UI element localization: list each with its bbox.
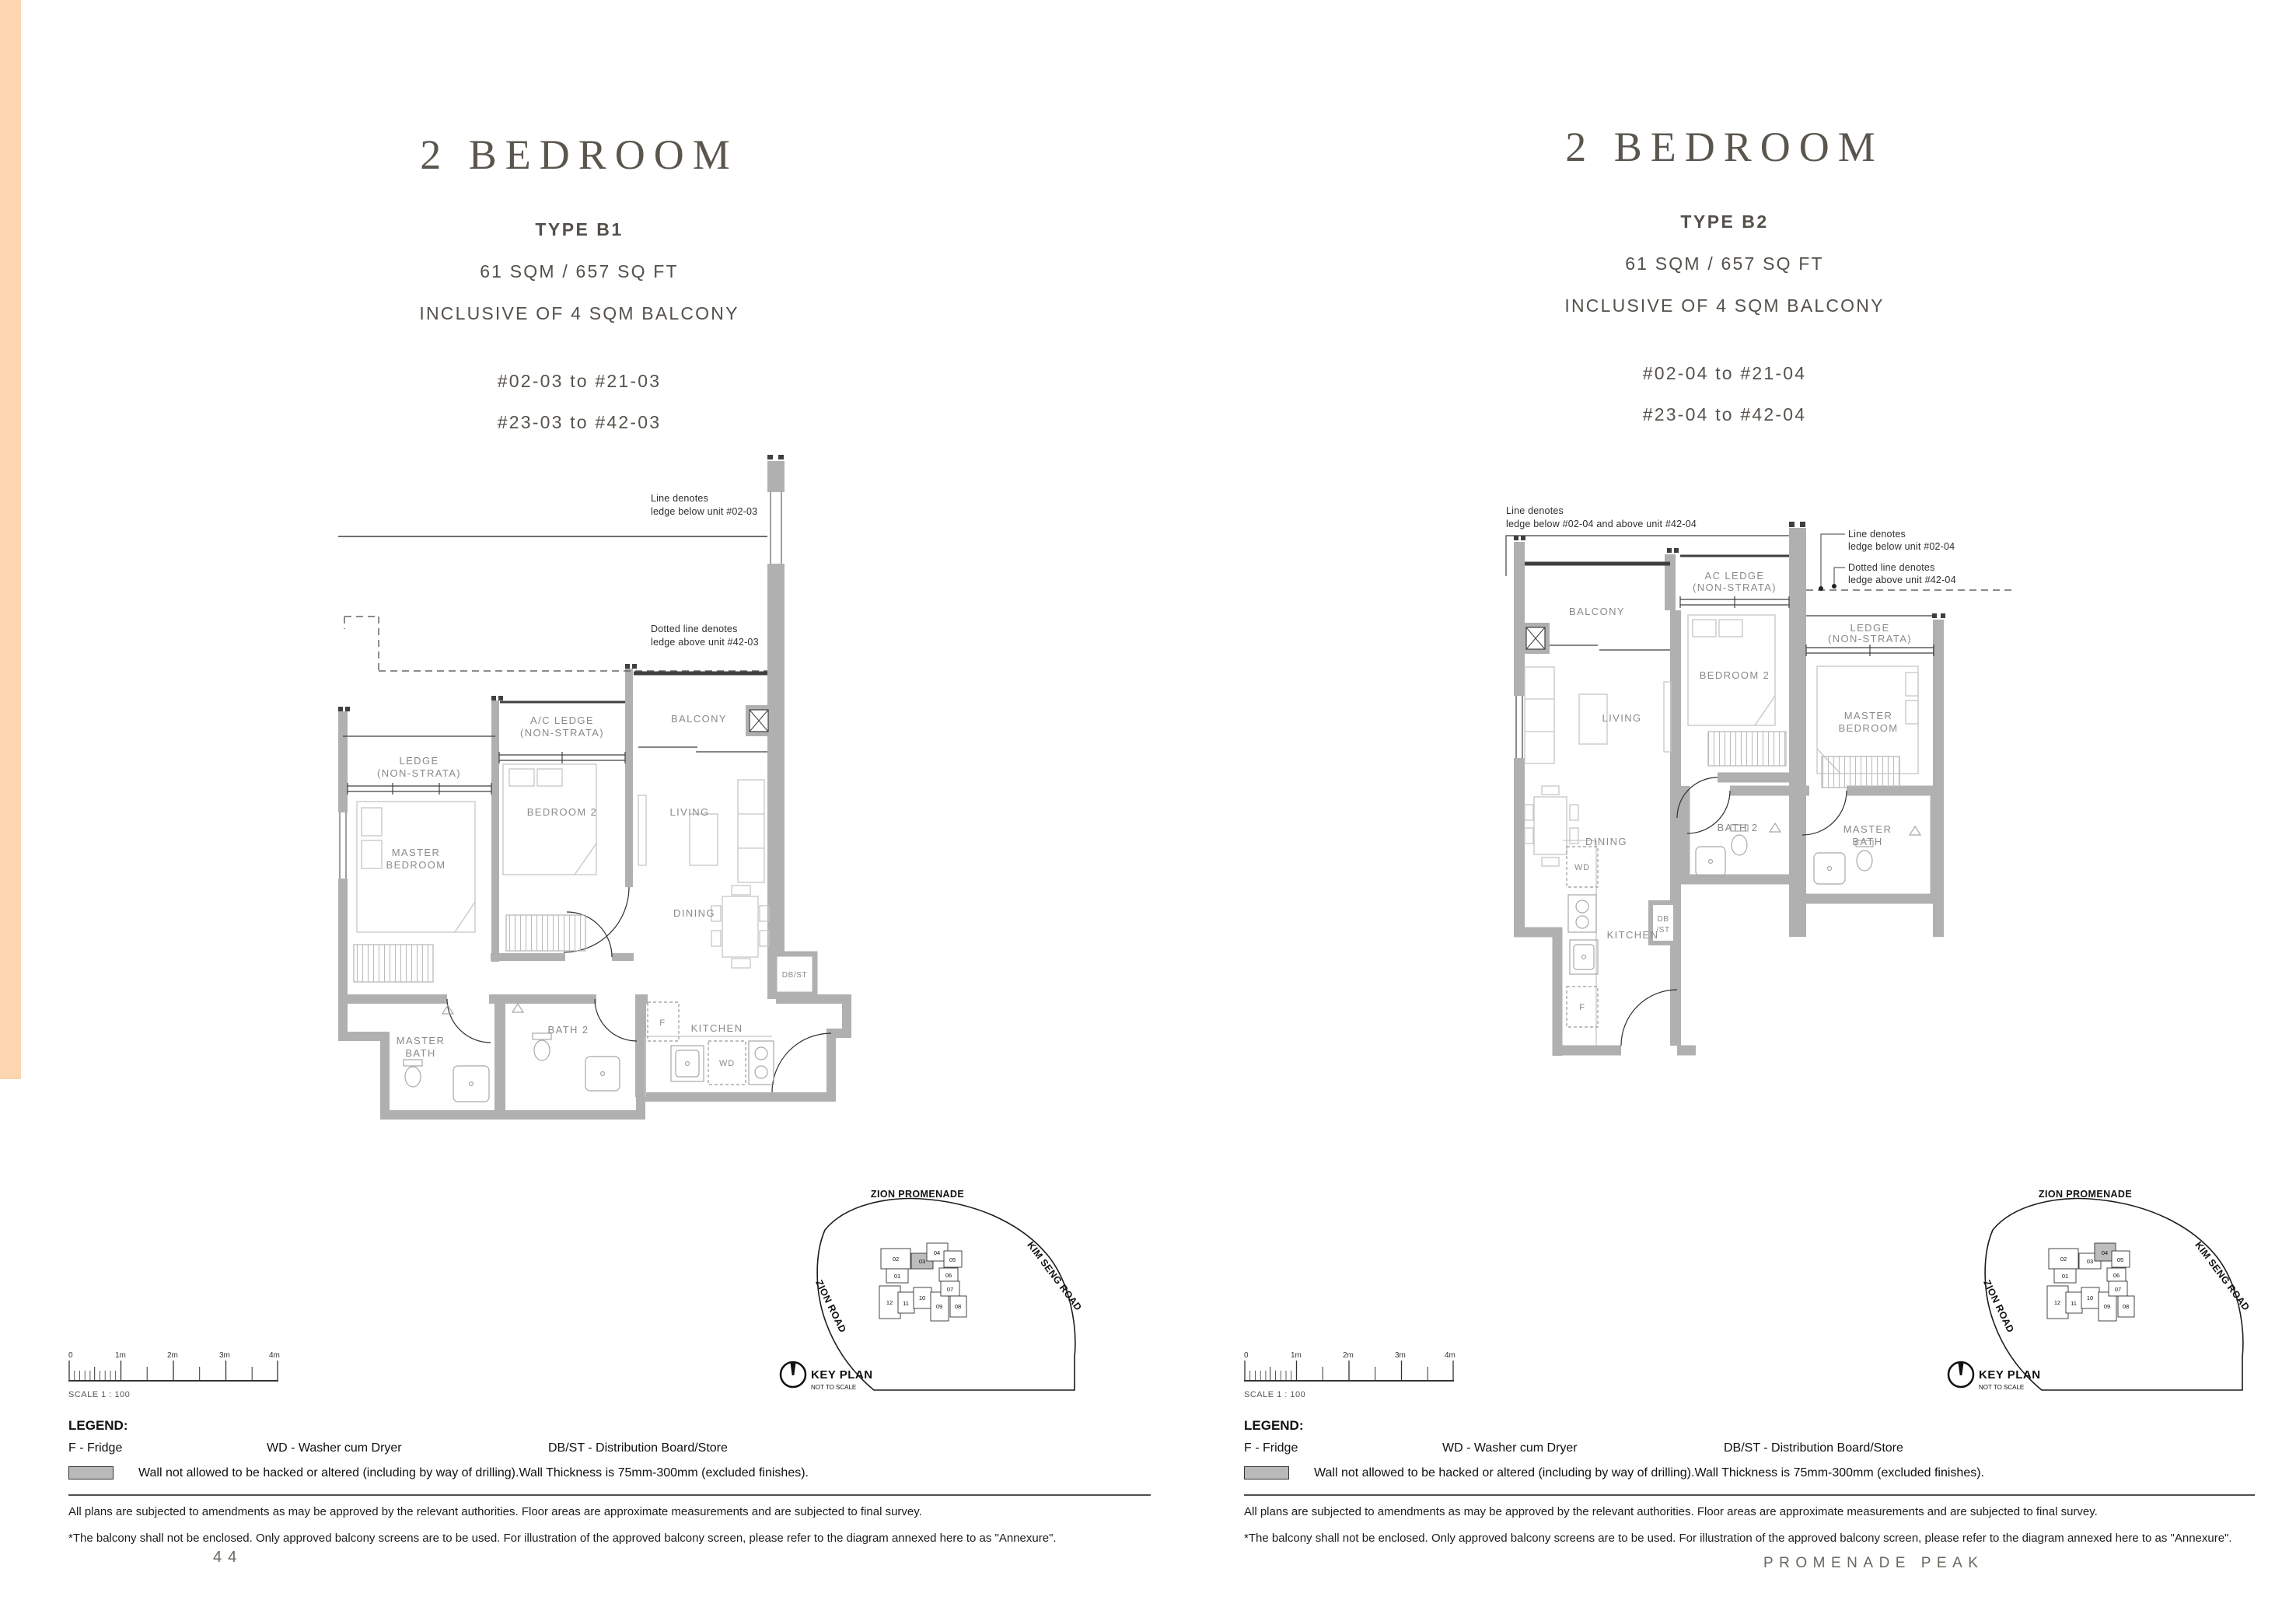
disclaimer-line2: *The balcony shall not be enclosed. Only… — [68, 1532, 1057, 1545]
block-02: 02 — [893, 1256, 899, 1263]
block-03: 03 — [2087, 1258, 2093, 1265]
legend-title: LEGEND: — [68, 1418, 128, 1434]
divider — [68, 1494, 1151, 1496]
b2-ann-solid-line1: Line denotes — [1848, 529, 1906, 540]
legend-item-wd: WD - Washer cum Dryer — [267, 1441, 402, 1455]
unit-range-2-b1: #23-03 to #42-03 — [327, 412, 832, 433]
legend-block-b1: 0 1m 2m 3m 4m SCALE 1 : 100 LEGEND: F - … — [68, 1350, 1151, 1575]
b1-label-master2: BEDROOM — [386, 859, 446, 871]
balcony-note-b2: INCLUSIVE OF 4 SQM BALCONY — [1472, 295, 1977, 316]
b1-label-living: LIVING — [669, 806, 709, 818]
legend-block-b2: 0 1m 2m 3m 4m SCALE 1 : 100 LEGEND: F - … — [1244, 1350, 2255, 1575]
road-zion-promenade: ZION PROMENADE — [871, 1189, 964, 1200]
legend-item-dbst: DB/ST - Distribution Board/Store — [548, 1441, 728, 1455]
b2-label-ledge2: (NON-STRATA) — [1828, 633, 1912, 645]
unit-range-2-b2: #23-04 to #42-04 — [1472, 404, 1977, 425]
scale-tick-1m: 1m — [1291, 1351, 1302, 1360]
b1-label-dbst: DB/ST — [782, 971, 807, 980]
block-11: 11 — [903, 1300, 909, 1307]
block-08: 08 — [955, 1303, 961, 1310]
b1-label-bath2: BATH 2 — [548, 1024, 589, 1036]
b1-label-mbath2: BATH — [405, 1047, 435, 1059]
b1-ann-dash-line1: Dotted line denotes — [651, 624, 738, 634]
area-label-b2: 61 SQM / 657 SQ FT — [1472, 253, 1977, 274]
block-11: 11 — [2071, 1300, 2077, 1307]
road-zion-promenade: ZION PROMENADE — [2039, 1189, 2132, 1200]
block-07: 07 — [947, 1286, 953, 1293]
page-number: 44 — [213, 1549, 243, 1567]
legend-wall-note: Wall not allowed to be hacked or altered… — [138, 1466, 809, 1480]
road-zion: ZION ROAD — [813, 1278, 848, 1334]
b2-label-wd: WD — [1574, 863, 1590, 872]
wall-swatch — [1244, 1466, 1289, 1479]
b1-label-dining: DINING — [673, 907, 715, 919]
accent-bar — [0, 0, 21, 1079]
scale-label: SCALE 1 : 100 — [1244, 1390, 1305, 1399]
block-06: 06 — [945, 1272, 952, 1279]
legend-item-fridge: F - Fridge — [1244, 1441, 1298, 1455]
block-05: 05 — [949, 1256, 956, 1263]
block-05: 05 — [2117, 1256, 2123, 1263]
b2-label-dining: DINING — [1585, 836, 1627, 847]
block-12: 12 — [886, 1299, 893, 1306]
legend-wall-note: Wall not allowed to be hacked or altered… — [1314, 1466, 1984, 1480]
unit-range-1-b1: #02-03 to #21-03 — [327, 371, 832, 392]
b1-ann-solid-line1: Line denotes — [651, 493, 708, 504]
scale-tick-0: 0 — [68, 1351, 73, 1360]
legend-item-fridge: F - Fridge — [68, 1441, 122, 1455]
legend-item-wd: WD - Washer cum Dryer — [1442, 1441, 1578, 1455]
page-title-b1: 2 BEDROOM — [327, 131, 832, 179]
block-07: 07 — [2115, 1286, 2121, 1293]
b2-label-bath2: BATH 2 — [1718, 822, 1759, 833]
scale-tick-1m: 1m — [115, 1351, 126, 1360]
b2-label-master1: MASTER — [1844, 710, 1893, 721]
scale-tick-2m: 2m — [167, 1351, 178, 1360]
legend-title: LEGEND: — [1244, 1418, 1304, 1434]
b2-label-f: F — [1579, 1003, 1585, 1012]
b2-ann-solid-line2: ledge below unit #02-04 — [1848, 541, 1955, 552]
b1-label-wd: WD — [719, 1059, 735, 1068]
b2-label-ledge: LEDGE — [1850, 622, 1889, 634]
disclaimer-line2: *The balcony shall not be enclosed. Only… — [1244, 1532, 2232, 1545]
header-b1: 2 BEDROOM TYPE B1 61 SQM / 657 SQ FT INC… — [327, 131, 832, 433]
b1-label-mbath1: MASTER — [397, 1035, 446, 1046]
block-01: 01 — [2062, 1273, 2068, 1280]
b1-ann-solid-line2: ledge below unit #02-03 — [651, 506, 757, 517]
area-label-b1: 61 SQM / 657 SQ FT — [327, 261, 832, 282]
b1-label-ac: A/C LEDGE — [530, 714, 594, 726]
divider — [1244, 1494, 2255, 1496]
b2-ann-top-line1: Line denotes — [1506, 505, 1564, 516]
block-12: 12 — [2054, 1299, 2060, 1306]
b2-ann-dash-line1: Dotted line denotes — [1848, 562, 1935, 573]
floorplan-b2: Line denotes ledge below #02-04 and abov… — [1504, 501, 2018, 1100]
b1-label-ac2: (NON-STRATA) — [520, 727, 604, 739]
block-10: 10 — [2087, 1294, 2093, 1301]
b1-label-balcony: BALCONY — [671, 713, 727, 725]
type-label-b1: TYPE B1 — [327, 219, 832, 240]
footer-brand: PROMENADE PEAK — [1763, 1555, 1983, 1572]
block-04: 04 — [934, 1249, 940, 1256]
block-09: 09 — [936, 1303, 942, 1310]
b2-ann-top-line2: ledge below #02-04 and above unit #42-04 — [1506, 519, 1697, 529]
block-01: 01 — [894, 1273, 900, 1280]
block-10: 10 — [919, 1294, 925, 1301]
legend-item-dbst: DB/ST - Distribution Board/Store — [1724, 1441, 1903, 1455]
unit-range-1-b2: #02-04 to #21-04 — [1472, 363, 1977, 384]
b2-ann-dash-line2: ledge above unit #42-04 — [1848, 575, 1956, 585]
block-06: 06 — [2113, 1272, 2120, 1279]
balcony-note-b1: INCLUSIVE OF 4 SQM BALCONY — [327, 303, 832, 324]
floorplan-b1: Line denotes ledge below unit #02-03 Dot… — [338, 455, 898, 1131]
b2-label-dbst1: DB — [1657, 915, 1669, 924]
disclaimer-line1: All plans are subjected to amendments as… — [68, 1505, 922, 1518]
page-title-b2: 2 BEDROOM — [1472, 123, 1977, 171]
type-label-b2: TYPE B2 — [1472, 211, 1977, 232]
scale-tick-0: 0 — [1244, 1351, 1249, 1360]
b2-label-ac: AC LEDGE — [1705, 570, 1765, 582]
block-02: 02 — [2060, 1256, 2067, 1263]
scale-label: SCALE 1 : 100 — [68, 1390, 130, 1399]
block-09: 09 — [2104, 1303, 2110, 1310]
header-b2: 2 BEDROOM TYPE B2 61 SQM / 657 SQ FT INC… — [1472, 123, 1977, 425]
b2-label-balcony: BALCONY — [1569, 606, 1625, 617]
road-zion: ZION ROAD — [1981, 1278, 2016, 1334]
b2-label-kitchen: KITCHEN — [1607, 929, 1659, 941]
scale-tick-4m: 4m — [269, 1351, 280, 1360]
b1-label-ledge: LEDGE — [399, 755, 439, 767]
road-kim-seng: KIM SENG ROAD — [1025, 1240, 1084, 1313]
block-03-highlight: 03 — [919, 1258, 925, 1265]
scale-tick-3m: 3m — [1395, 1351, 1406, 1360]
b1-label-master1: MASTER — [392, 847, 441, 858]
disclaimer-line1: All plans are subjected to amendments as… — [1244, 1505, 2098, 1518]
b1-label-ledge2: (NON-STRATA) — [377, 767, 461, 779]
block-08: 08 — [2123, 1303, 2129, 1310]
scale-bar: 0 1m 2m 3m 4m — [68, 1350, 280, 1385]
road-kim-seng: KIM SENG ROAD — [2193, 1240, 2252, 1313]
b1-label-bedroom2: BEDROOM 2 — [527, 806, 598, 818]
scale-tick-2m: 2m — [1343, 1351, 1354, 1360]
wall-swatch — [68, 1466, 114, 1479]
b2-label-dbst2: /ST — [1656, 926, 1669, 935]
b2-label-bedroom2: BEDROOM 2 — [1700, 669, 1770, 681]
b1-label-f: F — [659, 1018, 666, 1028]
b2-label-ac2: (NON-STRATA) — [1693, 582, 1777, 593]
scale-tick-4m: 4m — [1445, 1351, 1456, 1360]
b2-label-master2: BEDROOM — [1839, 722, 1899, 734]
b2-label-mbath2: BATH — [1852, 836, 1882, 847]
b1-ann-dash-line2: ledge above unit #42-03 — [651, 637, 759, 648]
block-04-highlight: 04 — [2102, 1249, 2108, 1256]
b2-label-mbath1: MASTER — [1843, 823, 1892, 835]
b2-label-living: LIVING — [1602, 712, 1641, 724]
scale-bar: 0 1m 2m 3m 4m — [1244, 1350, 1456, 1385]
scale-tick-3m: 3m — [219, 1351, 230, 1360]
b1-label-kitchen: KITCHEN — [691, 1022, 743, 1034]
